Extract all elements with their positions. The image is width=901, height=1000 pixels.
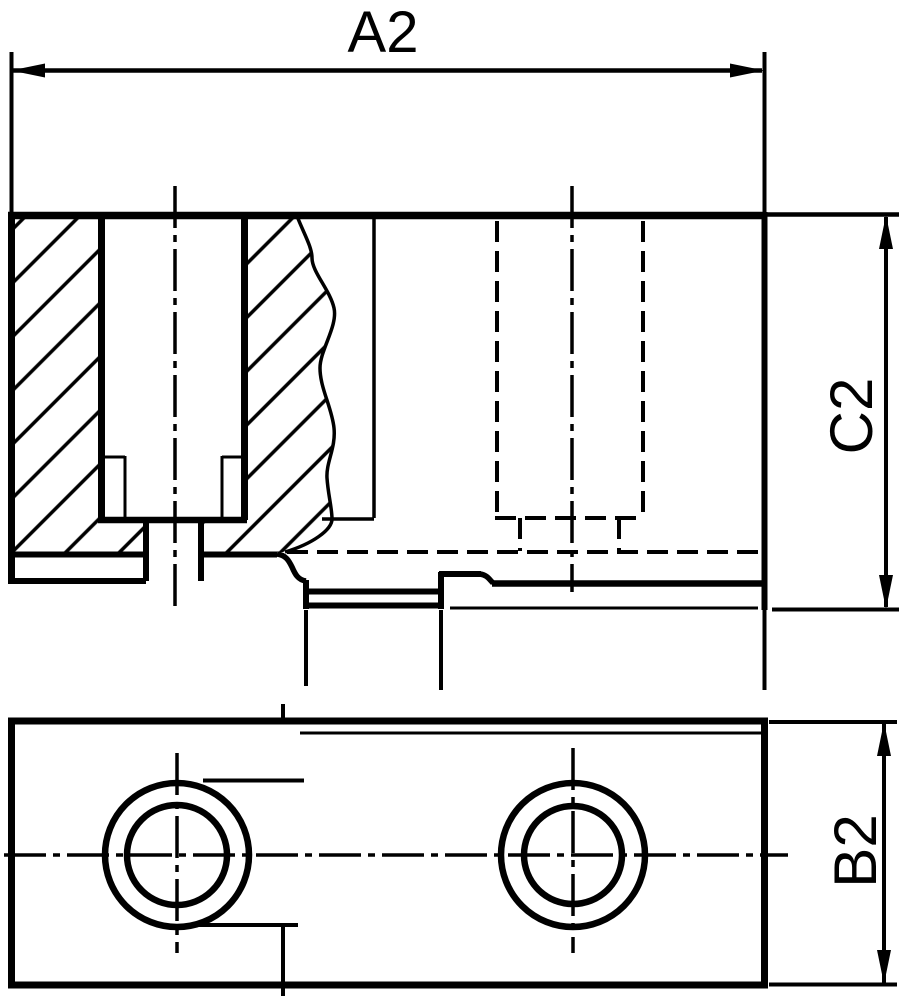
drawing-sheet: A2 C2 B2 bbox=[0, 0, 901, 1000]
c2-arrow-bottom bbox=[879, 575, 893, 609]
technical-drawing-svg: A2 C2 B2 bbox=[0, 0, 901, 1000]
visible-step-edge bbox=[322, 217, 374, 519]
dimension-label-c2: C2 bbox=[818, 378, 885, 455]
b2-arrow-bottom bbox=[877, 950, 891, 984]
dimension-c2: C2 bbox=[765, 215, 899, 610]
section-view bbox=[8, 186, 765, 612]
a2-arrow-right bbox=[730, 64, 764, 78]
c2-arrow-top bbox=[879, 215, 893, 249]
dimension-a2: A2 bbox=[11, 0, 765, 212]
step-curve-left bbox=[277, 554, 306, 581]
dimension-label-b2: B2 bbox=[822, 814, 889, 887]
bottom-view bbox=[4, 704, 788, 996]
hole-right bbox=[501, 748, 645, 953]
hidden-hole bbox=[287, 221, 762, 552]
projection-lines bbox=[306, 610, 765, 690]
b2-arrow-top bbox=[877, 722, 891, 756]
a2-arrow-left bbox=[11, 64, 45, 78]
dimension-b2: B2 bbox=[769, 722, 897, 985]
tongue-key bbox=[304, 572, 443, 609]
dimension-label-a2: A2 bbox=[348, 0, 419, 65]
step-curve-right bbox=[480, 574, 493, 583]
hatching bbox=[12, 216, 334, 552]
